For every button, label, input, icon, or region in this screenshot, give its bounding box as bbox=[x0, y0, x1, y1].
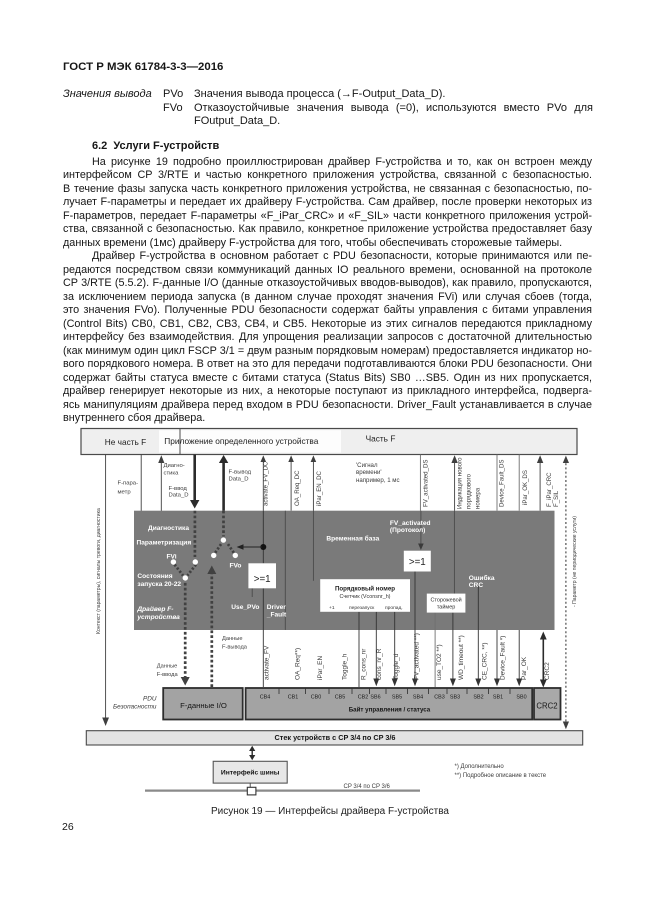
svg-text:F-данные I/O: F-данные I/O bbox=[180, 701, 227, 710]
svg-text:перезапуск: перезапуск bbox=[349, 606, 375, 611]
svg-text:OA_Req**): OA_Req**) bbox=[294, 648, 301, 680]
svg-text:activate_FV_DC: activate_FV_DC bbox=[263, 461, 270, 506]
svg-text:activate_FV: activate_FV bbox=[263, 645, 270, 680]
svg-text:F_iPar_CRC: F_iPar_CRC bbox=[546, 472, 553, 507]
svg-text:F-ввод: F-ввод bbox=[169, 486, 188, 492]
svg-text:CRC2: CRC2 bbox=[544, 662, 551, 680]
svg-text:Порядковый номер: Порядковый номер bbox=[335, 585, 395, 592]
svg-text:CB3: CB3 bbox=[434, 695, 445, 701]
svg-text:таймер: таймер bbox=[437, 603, 456, 610]
svg-text:FVi: FVi bbox=[167, 554, 177, 561]
svg-text:CB4: CB4 bbox=[260, 695, 271, 701]
svg-text:F-вывода: F-вывода bbox=[222, 645, 248, 651]
svg-text:пропад.: пропад. bbox=[385, 606, 403, 611]
svg-text:Toggle_h: Toggle_h bbox=[341, 653, 348, 680]
svg-text:SB2: SB2 bbox=[473, 695, 483, 701]
svg-text:Данные: Данные bbox=[222, 636, 243, 642]
svg-text:F_SIL: F_SIL bbox=[553, 490, 560, 507]
svg-text:номера: номера bbox=[475, 487, 482, 509]
svg-text:SB5: SB5 bbox=[392, 695, 402, 701]
svg-text:Device_Fault *): Device_Fault *) bbox=[499, 636, 506, 680]
svg-text:Стек устройств с CP 3/4 по CP: Стек устройств с CP 3/4 по CP 3/6 bbox=[275, 733, 396, 742]
svg-text:iPar_EN: iPar_EN bbox=[317, 655, 324, 680]
svg-text:Toggle_d: Toggle_d bbox=[393, 653, 400, 680]
svg-text:метр: метр bbox=[118, 490, 132, 496]
svg-text:CB1: CB1 bbox=[288, 695, 299, 701]
svg-text:Data_D: Data_D bbox=[169, 493, 189, 499]
svg-text:например, 1 мс: например, 1 мс bbox=[356, 477, 400, 484]
svg-text:Безопасности: Безопасности bbox=[113, 704, 157, 711]
svg-text:Байт управления / статуса: Байт управления / статуса bbox=[349, 707, 431, 714]
svg-text:>=1: >=1 bbox=[409, 557, 426, 568]
svg-text:устройства: устройства bbox=[136, 613, 180, 621]
svg-text:Драйвер F-: Драйвер F- bbox=[136, 605, 173, 613]
svg-text:CB5: CB5 bbox=[335, 695, 346, 701]
svg-text:CP 3/4 по CP 3/6: CP 3/4 по CP 3/6 bbox=[344, 784, 391, 790]
svg-text:Par_OK: Par_OK bbox=[521, 656, 528, 680]
svg-text:Не часть F: Не часть F bbox=[105, 437, 147, 447]
svg-text:Driver: Driver bbox=[267, 604, 286, 611]
svg-text:Data_D: Data_D bbox=[229, 477, 249, 483]
svg-text:F-вывод: F-вывод bbox=[229, 470, 252, 476]
svg-text:SB0: SB0 bbox=[516, 695, 526, 701]
svg-text:Часть F: Часть F bbox=[366, 434, 396, 444]
svg-text:Счетчик (Vconsnr_h): Счетчик (Vconsnr_h) bbox=[340, 594, 391, 600]
svg-text:F-ввода: F-ввода bbox=[157, 672, 179, 678]
svg-text:Индикация нового: Индикация нового bbox=[457, 457, 464, 509]
svg-text:CRC: CRC bbox=[469, 582, 484, 589]
svg-text:стика: стика bbox=[164, 471, 180, 477]
svg-text:- Параметр (не периодические у: - Параметр (не периодические услуги) bbox=[572, 516, 578, 607]
svg-text:Интерфейс шины: Интерфейс шины bbox=[221, 769, 280, 777]
svg-text:cons_nr_R: cons_nr_R bbox=[376, 648, 383, 680]
svg-text:CE_CRC, **): CE_CRC, **) bbox=[481, 642, 488, 680]
svg-text:Временная база: Временная база bbox=[326, 534, 379, 542]
svg-text:порядкового: порядкового bbox=[466, 473, 473, 509]
svg-text:Параметризация: Параметризация bbox=[137, 540, 192, 547]
svg-text:CB2: CB2 bbox=[358, 695, 369, 701]
svg-text:_Fault: _Fault bbox=[266, 612, 287, 619]
svg-text:SB3: SB3 bbox=[450, 695, 460, 701]
svg-text:Диагно-: Диагно- bbox=[164, 463, 185, 469]
svg-text:Состояния: Состояния bbox=[137, 573, 172, 580]
svg-text:use_TO2 **): use_TO2 **) bbox=[436, 644, 443, 680]
svg-text:FV_activated_DS: FV_activated_DS bbox=[423, 460, 430, 507]
svg-text:iPar_OK_DS: iPar_OK_DS bbox=[522, 470, 529, 505]
svg-text:CB0: CB0 bbox=[311, 695, 322, 701]
svg-text:Приложение определенного устро: Приложение определенного устройства bbox=[164, 436, 318, 446]
svg-text:Сторожевой: Сторожевой bbox=[430, 596, 461, 603]
svg-text:+1: +1 bbox=[329, 605, 335, 611]
svg-text:Контекст (параметры), сигналы: Контекст (параметры), сигналы тревоги, д… bbox=[96, 508, 102, 634]
svg-text:запуска 20-22: запуска 20-22 bbox=[137, 581, 181, 588]
svg-text:Данные: Данные bbox=[157, 663, 178, 669]
svg-text:Device_Fault_DS: Device_Fault_DS bbox=[499, 460, 506, 507]
svg-text:iPar_EN_DC: iPar_EN_DC bbox=[316, 471, 323, 506]
svg-text:FVo: FVo bbox=[230, 562, 242, 569]
svg-text:*) Дополнительно: *) Дополнительно bbox=[455, 764, 505, 770]
svg-text:Ошибка: Ошибка bbox=[469, 574, 495, 582]
svg-text:SB4: SB4 bbox=[413, 695, 423, 701]
svg-text:OA_Req_DC: OA_Req_DC bbox=[294, 470, 301, 506]
svg-text:FV_activated **): FV_activated **) bbox=[414, 633, 421, 680]
svg-text:F-пара-: F-пара- bbox=[118, 481, 139, 487]
svg-text:(Протокол): (Протокол) bbox=[390, 527, 425, 534]
svg-text:Диагностика: Диагностика bbox=[148, 525, 189, 532]
svg-text:SB6: SB6 bbox=[370, 695, 380, 701]
svg-text:WD_timeout **): WD_timeout **) bbox=[458, 635, 465, 680]
svg-text:CRC2: CRC2 bbox=[536, 702, 557, 711]
svg-text:R_cons_nr: R_cons_nr bbox=[360, 648, 367, 680]
svg-text:PDU: PDU bbox=[143, 696, 157, 703]
svg-text:'Сигнал: 'Сигнал bbox=[356, 462, 378, 469]
svg-text:времени': времени' bbox=[356, 469, 382, 476]
svg-text:FV_activated: FV_activated bbox=[390, 520, 431, 527]
svg-text:Use_PVo: Use_PVo bbox=[231, 604, 259, 611]
svg-text:SB1: SB1 bbox=[493, 695, 503, 701]
svg-text:**) Подробное описание в текст: **) Подробное описание в тексте bbox=[455, 773, 547, 779]
svg-text:>=1: >=1 bbox=[254, 574, 271, 585]
